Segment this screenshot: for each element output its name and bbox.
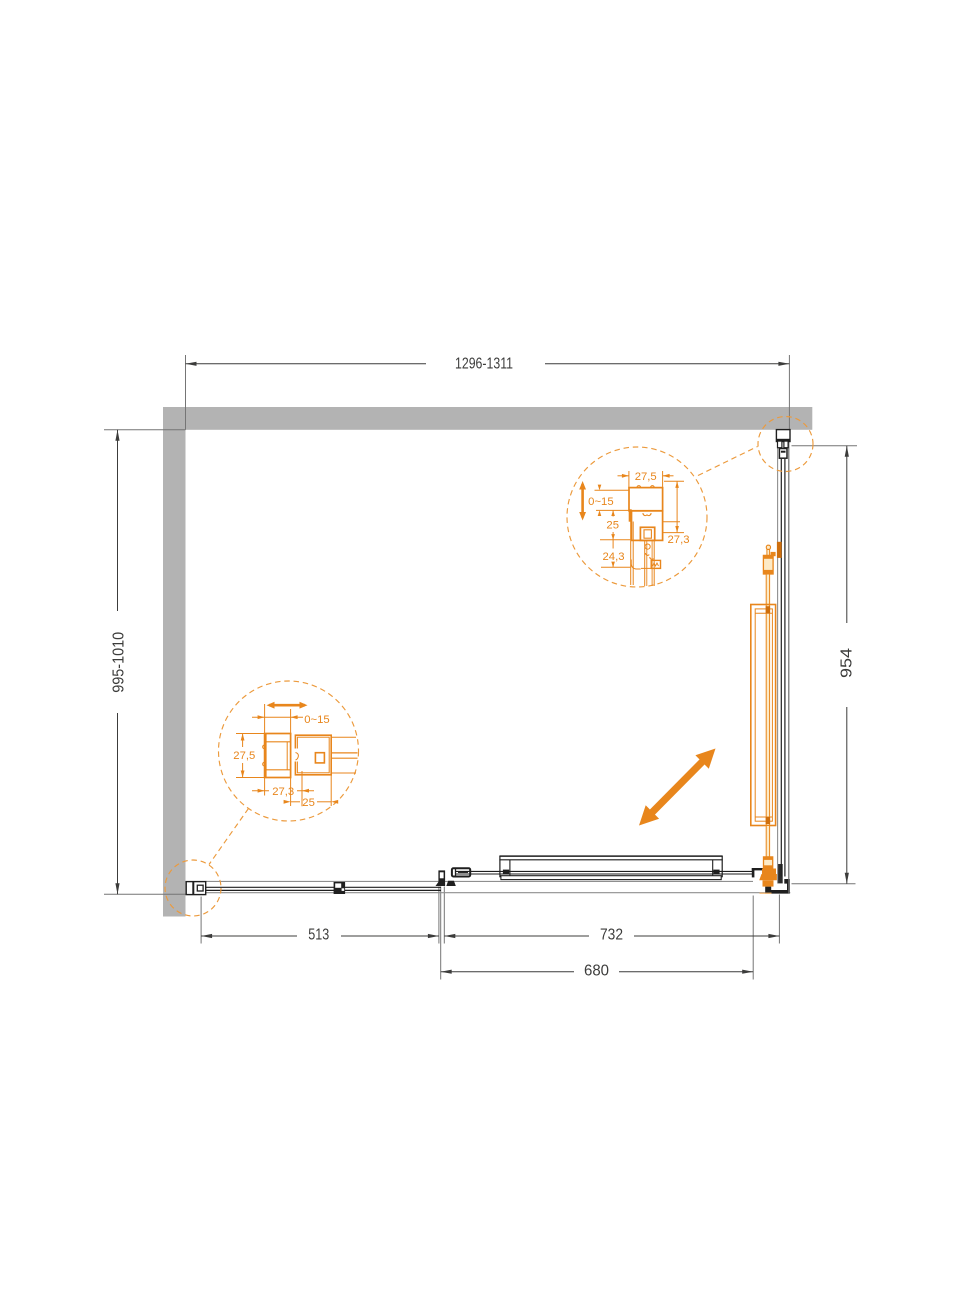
svg-text:732: 732	[600, 926, 623, 943]
svg-text:0~15: 0~15	[304, 714, 329, 726]
svg-text:954: 954	[838, 648, 855, 678]
svg-text:27,3: 27,3	[668, 534, 690, 546]
svg-text:1296-1311: 1296-1311	[455, 355, 513, 372]
svg-text:24,3: 24,3	[603, 551, 625, 563]
svg-text:0~15: 0~15	[588, 496, 613, 508]
svg-text:680: 680	[584, 963, 609, 980]
svg-text:25: 25	[606, 520, 619, 532]
svg-text:25: 25	[302, 797, 315, 809]
svg-text:995-1010: 995-1010	[110, 631, 127, 692]
svg-text:27,3: 27,3	[272, 786, 294, 798]
svg-text:27,5: 27,5	[635, 471, 657, 483]
svg-text:27,5: 27,5	[233, 750, 255, 762]
svg-text:513: 513	[308, 926, 329, 943]
